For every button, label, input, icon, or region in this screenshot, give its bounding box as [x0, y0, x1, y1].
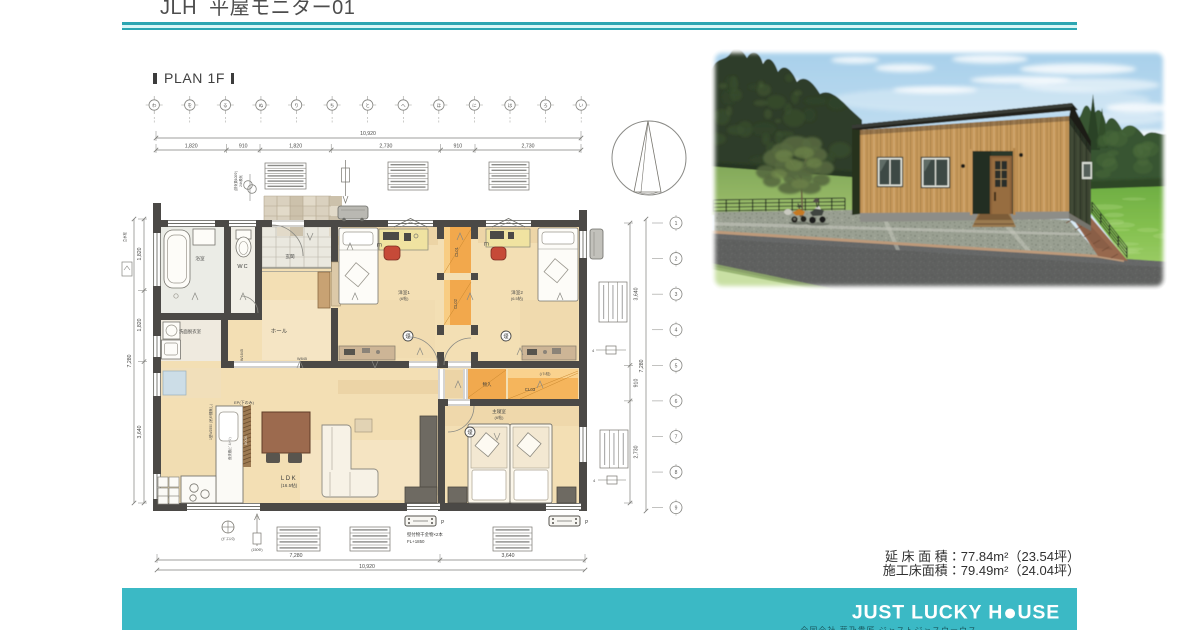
svg-text:(16.5帖): (16.5帖) — [281, 482, 298, 489]
svg-text:浴室: 浴室 — [195, 255, 205, 262]
svg-text:WC: WC — [237, 264, 248, 270]
svg-text:BOOK: BOOK — [244, 435, 248, 445]
svg-text:(ｶﾞｽｺﾝﾛ): (ｶﾞｽｺﾝﾛ) — [221, 536, 234, 541]
svg-text:CL02: CL02 — [453, 298, 458, 309]
svg-text:3,640: 3,640 — [502, 553, 515, 559]
svg-text:煙: 煙 — [405, 333, 410, 340]
svg-text:2,730: 2,730 — [379, 144, 392, 150]
svg-text:(6帖): (6帖) — [495, 414, 505, 420]
svg-text:1,820: 1,820 — [137, 318, 143, 331]
svg-text:1型W2550 (吊戸棚無し): 1型W2550 (吊戸棚無し) — [208, 404, 213, 440]
svg-text:8: 8 — [675, 470, 678, 476]
svg-text:EP(下のみ): EP(下のみ) — [234, 399, 255, 405]
svg-text:2,730: 2,730 — [522, 144, 535, 150]
svg-text:LDK: LDK — [281, 476, 297, 482]
svg-text:2: 2 — [675, 257, 678, 263]
svg-text:(パ・枕): (パ・枕) — [491, 363, 502, 368]
svg-text:W1645: W1645 — [240, 349, 244, 361]
svg-text:(150Φ): (150Φ) — [251, 548, 262, 552]
svg-text:2,730: 2,730 — [634, 445, 640, 458]
svg-text:る: る — [223, 103, 228, 108]
svg-text:ぬ: ぬ — [259, 103, 264, 108]
svg-text:1,820: 1,820 — [185, 144, 198, 150]
svg-text:3,640: 3,640 — [137, 425, 143, 438]
svg-text:7,280: 7,280 — [639, 359, 645, 372]
svg-text:洋室1: 洋室1 — [398, 289, 410, 296]
svg-text:主寝室: 主寝室 — [492, 408, 506, 414]
svg-text:食洗器(ﾋﾞﾙﾄｲﾝ): 食洗器(ﾋﾞﾙﾄｲﾝ) — [227, 437, 232, 460]
svg-text:3: 3 — [675, 292, 678, 298]
svg-text:6: 6 — [675, 399, 678, 405]
svg-text:玄関: 玄関 — [285, 253, 295, 260]
svg-text:洗面脱衣室: 洗面脱衣室 — [179, 328, 202, 335]
svg-text:煙: 煙 — [503, 333, 508, 340]
svg-text:7: 7 — [675, 434, 678, 440]
svg-text:立水栓: 立水栓 — [122, 231, 127, 242]
svg-text:壁付物干金物×2本: 壁付物干金物×2本 — [407, 531, 443, 538]
svg-text:W845: W845 — [297, 357, 307, 361]
svg-text:(6帖): (6帖) — [400, 295, 410, 301]
svg-text:FL+1850: FL+1850 — [407, 539, 425, 544]
svg-text:(排気筒100Φ): (排気筒100Φ) — [233, 171, 238, 191]
svg-text:4: 4 — [675, 328, 678, 334]
svg-text:4: 4 — [593, 478, 596, 483]
svg-text:E: E — [482, 242, 488, 246]
svg-text:P: P — [441, 520, 445, 526]
svg-text:(6.5帖): (6.5帖) — [511, 295, 524, 301]
svg-text:10,920: 10,920 — [360, 131, 376, 137]
svg-text:E: E — [375, 243, 381, 247]
svg-text:へ: へ — [401, 103, 406, 108]
svg-text:わ: わ — [152, 102, 157, 108]
svg-text:24h換気: 24h換気 — [238, 174, 243, 187]
svg-text:CL03: CL03 — [525, 387, 536, 392]
svg-text:と: と — [365, 103, 370, 108]
svg-text:910: 910 — [239, 144, 248, 150]
svg-text:1,820: 1,820 — [137, 247, 143, 260]
svg-text:910: 910 — [634, 379, 640, 388]
svg-text:1: 1 — [675, 221, 678, 227]
svg-text:煙: 煙 — [467, 429, 472, 436]
svg-text:7,280: 7,280 — [127, 354, 133, 367]
svg-text:3,640: 3,640 — [634, 287, 640, 300]
svg-text:5: 5 — [675, 363, 678, 369]
svg-text:P: P — [585, 520, 589, 526]
svg-text:CL01: CL01 — [454, 246, 459, 257]
svg-text:10,920: 10,920 — [359, 564, 375, 570]
svg-text:ホール: ホール — [271, 328, 288, 335]
svg-text:を: を — [187, 102, 192, 108]
svg-text:1,820: 1,820 — [289, 144, 302, 150]
svg-text:910: 910 — [453, 144, 462, 150]
svg-text:7,280: 7,280 — [290, 553, 303, 559]
svg-text:(パ・枕): (パ・枕) — [540, 371, 551, 376]
svg-text:9: 9 — [675, 506, 678, 512]
svg-text:4: 4 — [592, 348, 595, 353]
svg-text:洋室2: 洋室2 — [511, 289, 523, 296]
svg-text:い: い — [579, 103, 584, 108]
svg-text:物入: 物入 — [483, 381, 492, 388]
